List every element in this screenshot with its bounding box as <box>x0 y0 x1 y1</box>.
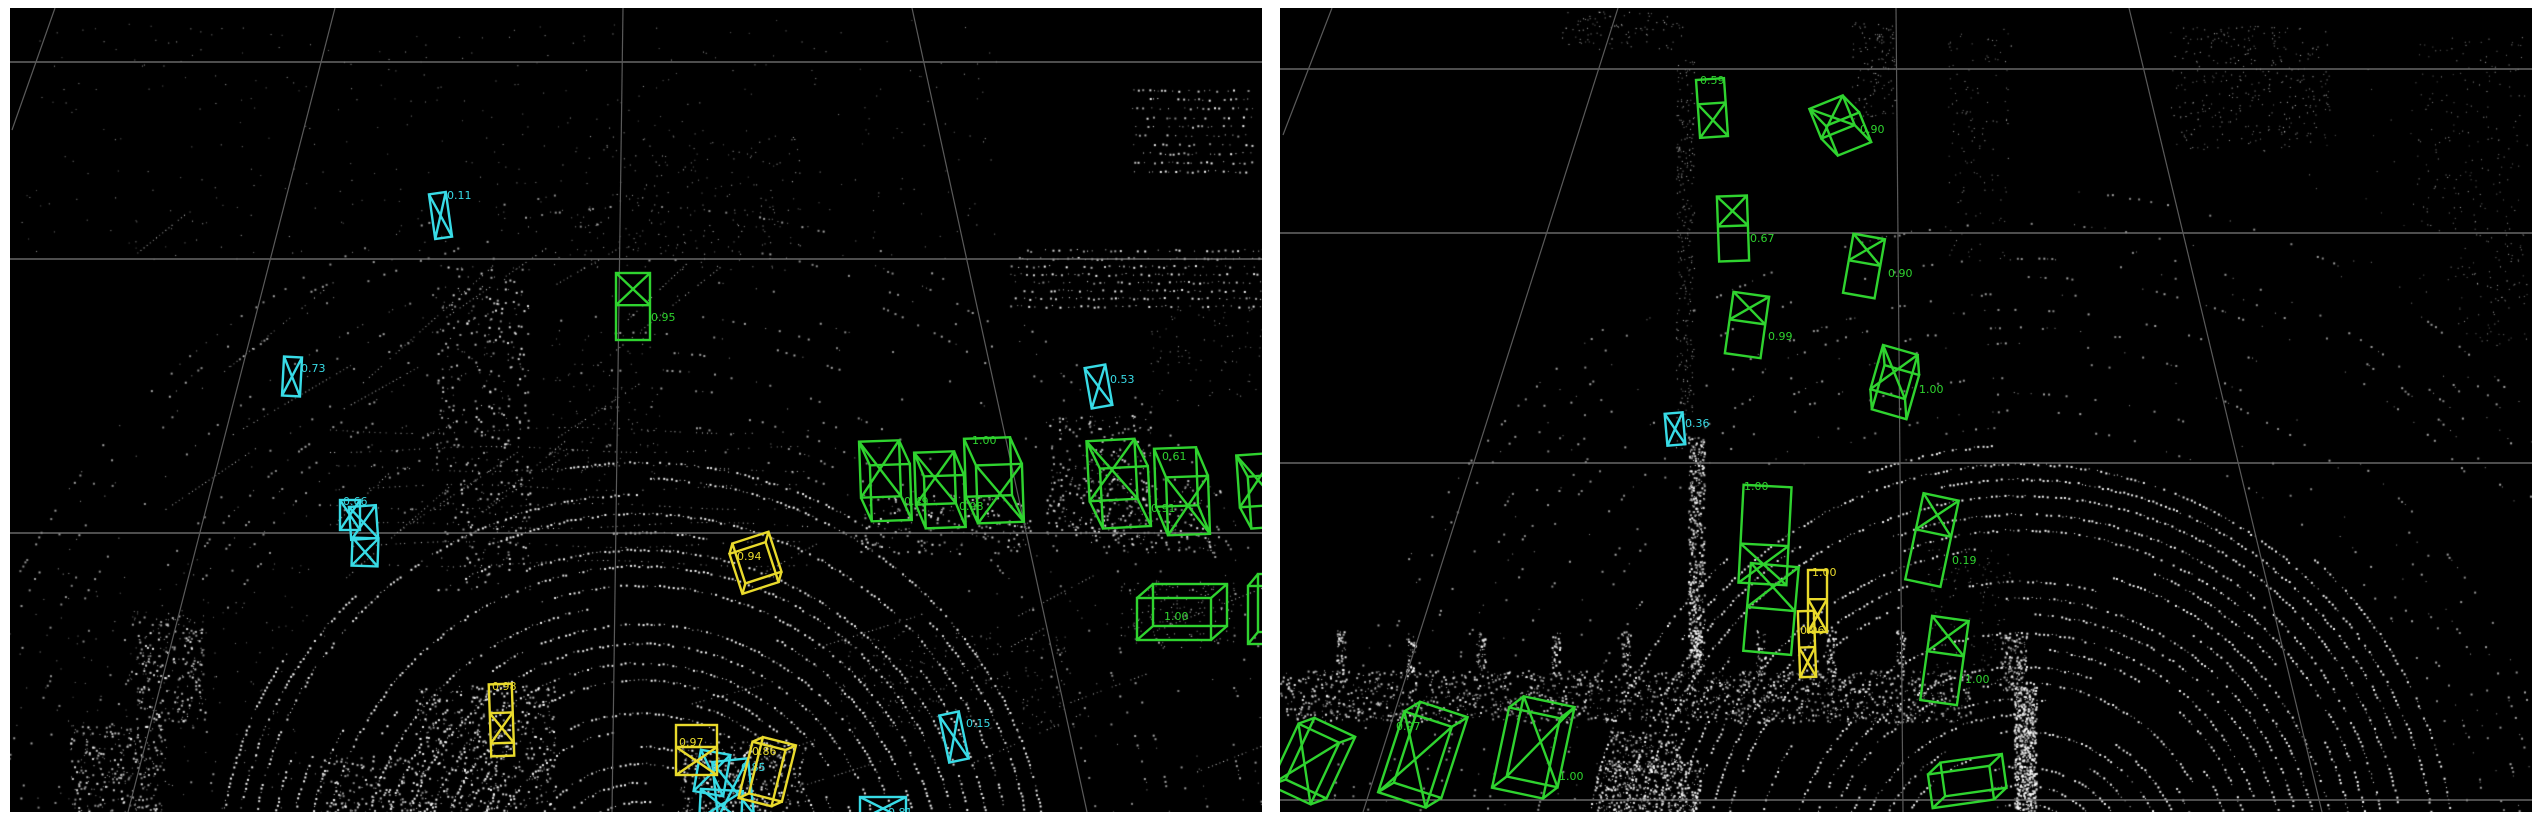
point-cloud-canvas-left[interactable] <box>10 8 1262 812</box>
lidar-view-right-panel: 0.590.900.670.900.991.001.000.191.000.97… <box>1280 8 2532 812</box>
point-cloud-canvas-right[interactable] <box>1280 8 2532 812</box>
lidar-detection-visualization: 0.110.730.660.850.810.150.530.940.970.86… <box>0 0 2542 820</box>
lidar-view-left-panel: 0.110.730.660.850.810.150.530.940.970.86… <box>10 8 1262 812</box>
